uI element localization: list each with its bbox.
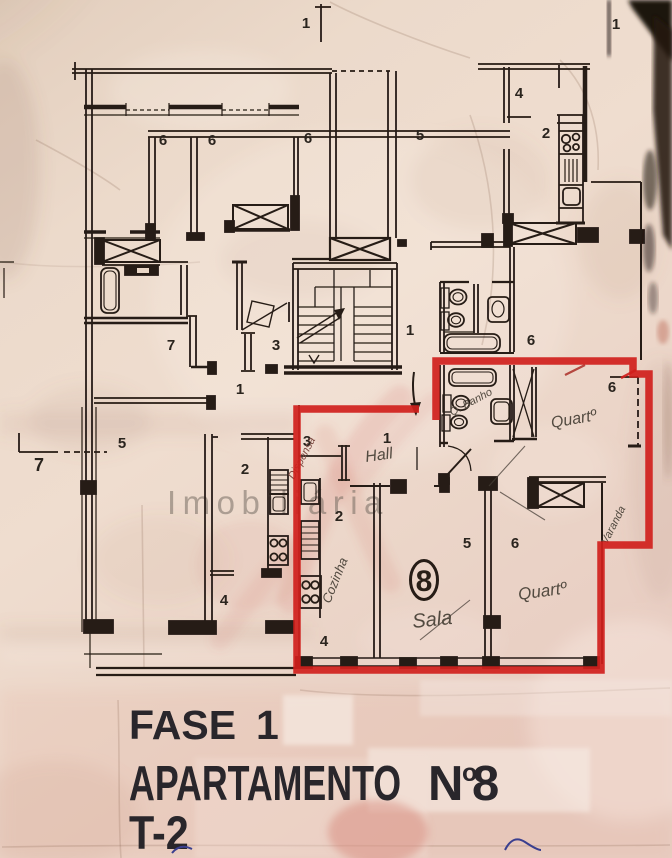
svg-text:5: 5 [118,435,126,452]
svg-text:4: 4 [515,85,524,102]
svg-text:5: 5 [463,535,471,552]
svg-text:FASE: FASE [129,702,236,748]
svg-text:1: 1 [256,702,279,748]
svg-text:2: 2 [335,508,343,525]
svg-text:6: 6 [608,379,616,396]
svg-text:N: N [428,757,463,811]
svg-text:6: 6 [159,132,167,149]
svg-text:Sala: Sala [411,607,453,633]
svg-text:7: 7 [167,337,175,354]
svg-text:7: 7 [34,455,44,475]
svg-text:8: 8 [472,757,499,811]
svg-text:6: 6 [527,332,535,349]
svg-text:4: 4 [320,633,329,650]
svg-text:4: 4 [220,592,229,609]
svg-text:3: 3 [272,337,280,354]
svg-text:6: 6 [511,535,519,552]
svg-text:APARTAMENTO: APARTAMENTO [129,757,401,812]
svg-text:T-2: T-2 [129,808,189,858]
svg-text:1: 1 [302,15,310,32]
svg-text:6: 6 [304,130,312,147]
svg-text:1: 1 [383,430,391,447]
svg-text:1: 1 [236,381,244,398]
svg-text:2: 2 [542,125,550,142]
svg-text:6: 6 [208,132,216,149]
svg-text:1: 1 [406,322,414,339]
svg-text:2: 2 [241,461,249,478]
svg-text:8: 8 [416,565,433,598]
svg-text:5: 5 [416,127,424,144]
svg-text:1: 1 [612,16,620,33]
